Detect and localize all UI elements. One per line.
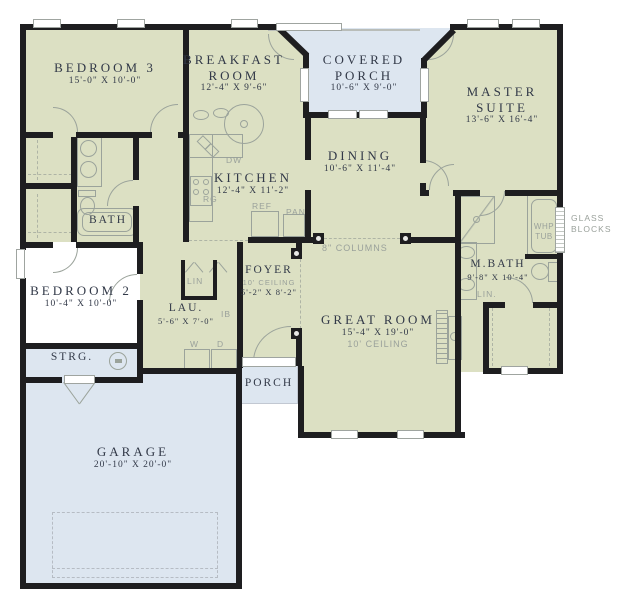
foyer-name: FOYER [238, 264, 300, 278]
label-glass-blocks: GLASS BLOCKS [571, 213, 612, 234]
master-name-2: SUITE [443, 100, 561, 116]
floor-plan: BEDROOM 3 15'-0" X 10'-0" BREAKFAST ROOM… [0, 0, 625, 609]
window-bedroom3-1 [33, 19, 61, 28]
wall-strg-bottom-2 [94, 377, 143, 383]
lau-name: LAU. [146, 302, 226, 316]
room-label-great-room: GREAT ROOM 15'-4" X 19'-0" 10' CEILING [308, 312, 448, 351]
label-dw: DW [226, 155, 242, 166]
mbath-name: M.BATH [452, 258, 544, 272]
refrigerator [251, 211, 279, 237]
window-closet-bottom [501, 366, 528, 375]
garage-door-dashed-line [52, 568, 218, 570]
window-bedroom2-left [16, 249, 25, 279]
wall-closet-west [483, 302, 489, 374]
door-arc-bedroom2-closet [53, 248, 78, 273]
room-label-lau: LAU. 5'-6" X 7'-0" [146, 302, 226, 326]
wall-colonnade-right [408, 237, 458, 243]
room-label-bedroom3: BEDROOM 3 15'-0" X 10'-0" [30, 60, 180, 87]
kitchen-name: KITCHEN [198, 170, 308, 186]
colonnade-dashed-line [324, 238, 400, 240]
water-heater-glyph [115, 359, 122, 363]
wall-bedroom3-bottom-1 [25, 132, 53, 138]
closet1-shelf-line-h [28, 174, 72, 176]
wall-great-south [298, 432, 465, 438]
wall-garage-bottom [20, 583, 242, 589]
wall-strg-top [20, 343, 143, 349]
great-room-name: GREAT ROOM [308, 312, 448, 328]
window-great-1 [331, 430, 358, 439]
mbath-shower-drain [473, 216, 480, 223]
closet2-shelf-line-h [28, 232, 72, 234]
wall-lau-south [143, 368, 239, 374]
dining-name: DINING [304, 148, 416, 164]
wic-rod-right [549, 308, 551, 366]
wall-closet-north-2 [533, 302, 563, 308]
room-label-porch: PORCH [240, 377, 298, 391]
front-door-sidelites [242, 357, 296, 367]
wall-garage-east [236, 368, 242, 589]
bedroom2-name: BEDROOM 2 [26, 283, 136, 299]
wall-lin-east [213, 260, 217, 300]
bath-name: BATH [80, 214, 136, 228]
column-foyer-top [291, 248, 302, 259]
wall-mbath-west [455, 192, 461, 438]
foyer-colonnade-dashed-line [300, 259, 302, 329]
bar-stool-1 [193, 110, 209, 120]
wall-foyer-west [237, 242, 243, 368]
wall-great-west [298, 366, 304, 438]
window-dining-1 [328, 110, 357, 119]
wall-master-bottom-2 [453, 190, 480, 196]
great-room-ceiling: 10' CEILING [308, 339, 448, 350]
foyer-dims: 5'-2" X 8'-2" [238, 287, 300, 298]
label-dryer: D [217, 339, 224, 350]
wall-bath-east-1 [133, 132, 139, 180]
wall-right-lower [557, 252, 563, 374]
glass-blocks-line2: BLOCKS [571, 224, 612, 235]
bath-sink-2 [80, 161, 97, 178]
wall-strg-bottom-1 [20, 377, 62, 383]
bedroom2-dims: 10'-4" X 10'-0" [26, 299, 136, 311]
great-room-dims: 15'-4" X 19'-0" [308, 328, 448, 340]
window-great-2 [397, 430, 424, 439]
wall-master-bottom-3 [505, 190, 563, 196]
window-dining-2 [359, 110, 388, 119]
bedroom3-name: BEDROOM 3 [30, 60, 180, 76]
room-label-master: MASTER SUITE 13'-6" X 16'-4" [443, 84, 561, 127]
label-whp-tub: WHP TUB [528, 222, 560, 242]
covered-porch-name-2: PORCH [308, 68, 420, 84]
breakfast-dims: 12'-4" X 9'-6" [178, 83, 290, 95]
label-washer: W [190, 339, 199, 350]
wall-closet-north-1 [483, 302, 505, 308]
bath-sink-1 [80, 140, 97, 157]
porch-name: PORCH [240, 377, 298, 391]
window-breakfast [231, 19, 258, 28]
glass-blocks-line1: GLASS [571, 213, 612, 224]
wall-left-lower [20, 278, 26, 588]
wall-lin-west [181, 260, 185, 300]
strg-door-threshold [64, 375, 95, 384]
column-dining-right [400, 233, 411, 244]
room-label-breakfast: BREAKFAST ROOM 12'-4" X 9'-6" [178, 52, 290, 95]
label-ref: REF [252, 201, 272, 212]
wall-bedroom3-bottom-3 [178, 132, 189, 138]
wall-bedroom2-top-2 [76, 242, 140, 248]
garage-name: GARAGE [70, 444, 196, 460]
fill-cutout-below-porch [242, 404, 298, 438]
breakfast-table-hub [240, 120, 248, 128]
breakfast-name-1: BREAKFAST [178, 52, 290, 68]
wall-bedroom3-bottom-2 [76, 132, 152, 138]
room-label-covered-porch: COVERED PORCH 10'-6" X 9'-0" [308, 52, 420, 95]
whp-tub-line1: WHP [528, 222, 560, 232]
wall-left-upper [20, 24, 26, 250]
wic-rod-left [492, 308, 494, 366]
mbath-dims: 9'-8" X 10'-4" [452, 272, 544, 283]
column-foyer-bottom [291, 328, 302, 339]
wall-lin-south [181, 296, 217, 300]
foyer-ceiling: 10' CEILING [238, 278, 300, 287]
label-ironing-board: IB [221, 309, 231, 320]
wall-dining-east-stub [420, 183, 426, 192]
room-label-garage: GARAGE 20'-10" X 20'-0" [70, 444, 196, 471]
bath-toilet-tank [78, 190, 96, 197]
label-pan: PAN [286, 207, 306, 218]
window-porch-top [276, 23, 342, 31]
wall-closets-east [71, 137, 77, 242]
room-label-mbath: M.BATH 9'-8" X 10'-4" [452, 258, 544, 282]
dining-dims: 10'-6" X 11'-4" [304, 164, 416, 176]
strg-name: STRG. [36, 351, 108, 365]
wall-dining-east-upper [420, 113, 426, 163]
label-lin-mbath: LIN. [477, 289, 497, 300]
wall-bedroom2-east-2 [137, 300, 143, 378]
room-label-bath: BATH [80, 214, 136, 228]
window-bedroom3-2 [117, 19, 145, 28]
covered-porch-dims: 10'-6" X 9'-0" [308, 83, 420, 95]
window-master-2 [512, 19, 540, 28]
wall-closet-divider [25, 183, 77, 189]
bedroom3-dims: 15'-0" X 10'-0" [30, 76, 180, 88]
label-columns: 8" COLUMNS [322, 243, 388, 254]
room-label-strg: STRG. [36, 351, 108, 365]
window-master-1 [467, 19, 499, 28]
whp-tub-line2: TUB [528, 232, 560, 242]
label-rg: RG [203, 194, 218, 205]
window-porch-right [420, 68, 429, 102]
breakfast-name-2: ROOM [178, 68, 290, 84]
covered-porch-name-1: COVERED [308, 52, 420, 68]
garage-dims: 20'-10" X 20'-0" [70, 460, 196, 472]
room-label-bedroom2: BEDROOM 2 10'-4" X 10'-0" [26, 283, 136, 310]
room-label-dining: DINING 10'-6" X 11'-4" [304, 148, 416, 175]
label-lin-laundry: LIN [187, 276, 203, 287]
lau-dims: 5'-6" X 7'-0" [146, 316, 226, 327]
master-name-1: MASTER [443, 84, 561, 100]
room-label-foyer: FOYER 10' CEILING 5'-2" X 8'-2" [238, 264, 300, 298]
master-dims: 13'-6" X 16'-4" [443, 115, 561, 127]
wall-bedroom2-east-1 [137, 242, 143, 274]
